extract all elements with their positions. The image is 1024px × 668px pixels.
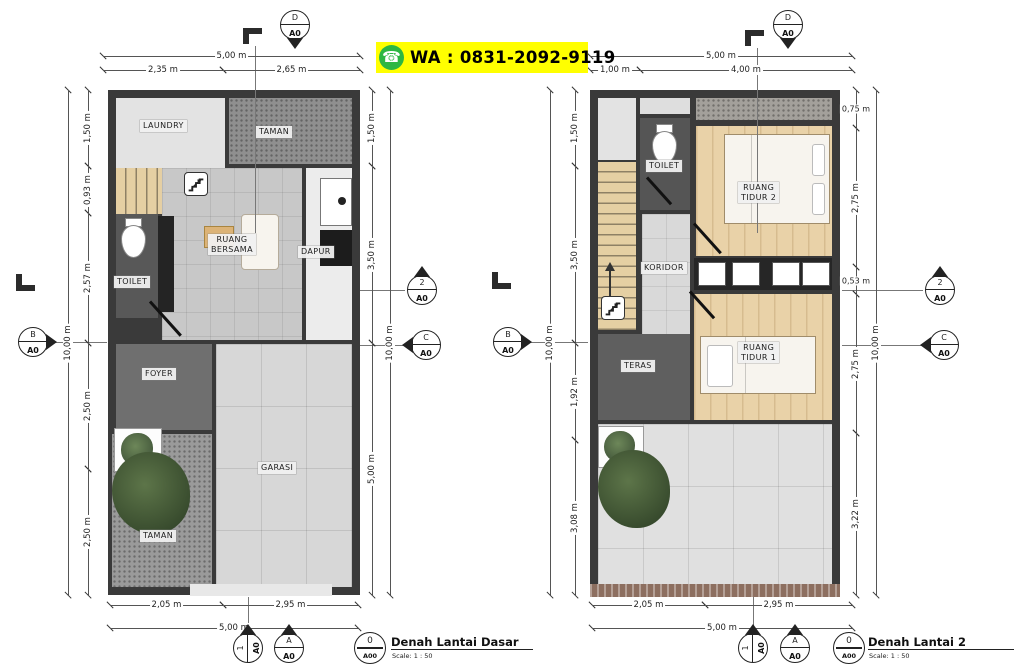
dimension-value: 2,75 m xyxy=(851,181,861,215)
room-label: LAUNDRY xyxy=(140,120,187,132)
marker-arrow xyxy=(281,624,297,635)
dimension-value: 2,50 m xyxy=(83,389,93,423)
marker-arrow xyxy=(46,334,57,350)
whatsapp-icon: ☎ xyxy=(379,45,404,70)
kitchen-appliance xyxy=(320,178,352,226)
dimension: 2,50 m xyxy=(83,343,93,469)
dimension: 1,50 m xyxy=(83,90,93,166)
dimension-value: 0,53 m xyxy=(840,276,872,285)
dimension-value: 3,50 m xyxy=(367,238,377,272)
room-teras xyxy=(598,334,690,420)
dimension: 10,00 m xyxy=(545,90,555,595)
section-marker-b: BA0 xyxy=(16,325,50,359)
dimension-value: 2,35 m xyxy=(146,65,180,75)
dimension: 5,00 m xyxy=(367,343,377,595)
marker-arrow xyxy=(240,624,256,635)
dimension-value: 5,00 m xyxy=(367,452,377,486)
section-marker-d: DA0 xyxy=(771,8,805,42)
section-cut-symbol xyxy=(492,283,511,289)
section-marker-c: CA0 xyxy=(927,328,961,362)
dimension: 2,75 m xyxy=(851,128,861,267)
wardrobe xyxy=(694,258,832,290)
dimension-value: 1,50 m xyxy=(570,111,580,145)
room-void-mid xyxy=(640,98,690,114)
section-marker-2: 2A0 xyxy=(923,273,957,307)
room-label: RUANG TIDUR 2 xyxy=(738,182,779,203)
section-marker-a: AA0 xyxy=(272,631,306,665)
dimension-value: 2,05 m xyxy=(150,600,184,610)
dimension: 2,05 m xyxy=(110,600,223,610)
dimension: 5,00 m xyxy=(592,623,852,633)
stairs-icon xyxy=(601,296,625,320)
dimension: 3,50 m xyxy=(367,166,377,343)
dimension: 0,75 m xyxy=(851,90,861,128)
section-marker-c: CA0 xyxy=(409,328,443,362)
stairs-icon xyxy=(184,172,208,196)
dimension: 0,93 m xyxy=(83,166,93,213)
dimension-value: 2,05 m xyxy=(632,600,666,610)
section-marker-1: 1A0 xyxy=(736,631,770,665)
whatsapp-number: WA : 0831-2092-9119 xyxy=(410,48,615,67)
section-marker-1: 1A0 xyxy=(231,631,265,665)
dimension-value: 10,00 m xyxy=(545,323,555,362)
dimension-value: 3,22 m xyxy=(851,497,861,531)
dimension-value: 0,93 m xyxy=(83,173,93,207)
section-cut-symbol xyxy=(16,285,35,291)
reference-line xyxy=(757,48,758,233)
room-label: GARASI xyxy=(258,462,296,474)
room-label: TOILET xyxy=(646,160,682,172)
double-bed xyxy=(724,134,830,224)
dimension: 1,50 m xyxy=(367,90,377,166)
title-marker: 0A00 xyxy=(833,632,865,664)
room-label: TERAS xyxy=(621,360,655,372)
dimension-value: 2,57 m xyxy=(83,261,93,295)
room-label: DAPUR xyxy=(298,246,334,258)
dimension-value: 1,50 m xyxy=(367,111,377,145)
section-cut-symbol xyxy=(243,28,249,44)
room-label: TAMAN xyxy=(256,126,292,138)
dimension: 10,00 m xyxy=(385,90,395,595)
marker-arrow xyxy=(920,337,931,353)
dimension-value: 3,08 m xyxy=(570,501,580,535)
dimension-value: 5,00 m xyxy=(705,623,739,633)
dimension: 2,65 m xyxy=(223,65,360,75)
dimension: 2,57 m xyxy=(83,213,93,343)
title-rule xyxy=(391,649,533,650)
fixture-rect xyxy=(190,584,332,596)
section-marker-a: AA0 xyxy=(778,631,812,665)
section-marker-d: DA0 xyxy=(278,8,312,42)
dimension-value: 1,50 m xyxy=(83,111,93,145)
dimension: 3,08 m xyxy=(570,440,580,595)
dimension-value: 0,75 m xyxy=(840,105,872,114)
dimension: 2,35 m xyxy=(103,65,223,75)
dimension-value: 2,50 m xyxy=(83,515,93,549)
dimension: 5,00 m xyxy=(103,51,360,61)
marker-arrow xyxy=(521,334,532,350)
dimension-value: 4,00 m xyxy=(729,65,763,75)
room-label: TAMAN xyxy=(140,530,176,542)
marker-arrow xyxy=(745,624,761,635)
dimension-value: 2,65 m xyxy=(275,65,309,75)
dimension-value: 1,92 m xyxy=(570,375,580,409)
marker-arrow xyxy=(932,266,948,277)
dimension-value: 10,00 m xyxy=(385,323,395,362)
toilet-wc xyxy=(652,124,677,164)
room-label: RUANG TIDUR 1 xyxy=(738,342,779,363)
dimension-value: 10,00 m xyxy=(871,323,881,362)
room-laundry xyxy=(116,98,225,168)
dimension-value: 5,00 m xyxy=(215,51,249,61)
dimension: 5,00 m xyxy=(590,51,852,61)
title-marker: 0A00 xyxy=(354,632,386,664)
floor-plan-canvas: ☎ WA : 0831-2092-9119 LAUNDRYTAMANRUANG … xyxy=(0,0,1024,668)
room-label: KORIDOR xyxy=(641,262,687,274)
dimension: 3,22 m xyxy=(851,433,861,595)
plan-title: Denah Lantai Dasar xyxy=(391,635,519,649)
room-foyer xyxy=(116,344,212,430)
dimension-value: 3,50 m xyxy=(570,238,580,272)
dimension: 4,00 m xyxy=(640,65,852,75)
dimension: 10,00 m xyxy=(871,90,881,595)
dimension-value: 2,75 m xyxy=(851,347,861,381)
whatsapp-banner: ☎ WA : 0831-2092-9119 xyxy=(376,42,588,73)
garden-tree xyxy=(598,450,670,528)
room-void-left xyxy=(598,98,636,160)
fixture-rect xyxy=(158,216,174,312)
dimension-value: 2,95 m xyxy=(762,600,796,610)
dimension: 1,50 m xyxy=(570,90,580,166)
toilet-wc xyxy=(121,218,146,258)
plan-scale: Scale: 1 : 50 xyxy=(869,652,909,660)
marker-arrow xyxy=(402,337,413,353)
room-label: RUANG BERSAMA xyxy=(208,234,256,255)
marker-arrow xyxy=(414,266,430,277)
dimension: 2,75 m xyxy=(851,294,861,433)
dimension-value: 2,95 m xyxy=(274,600,308,610)
room-label: TOILET xyxy=(114,276,150,288)
room-label: FOYER xyxy=(142,368,176,380)
dimension: 2,95 m xyxy=(705,600,852,610)
dimension: 10,00 m xyxy=(63,90,73,595)
marker-arrow xyxy=(780,38,796,49)
room-roof xyxy=(696,98,832,120)
paver-strip xyxy=(590,584,840,597)
dimension: 2,05 m xyxy=(592,600,705,610)
dimension: 3,50 m xyxy=(570,166,580,343)
plan-scale: Scale: 1 : 50 xyxy=(392,652,432,660)
dimension: 1,92 m xyxy=(570,343,580,440)
marker-arrow xyxy=(787,624,803,635)
section-marker-2: 2A0 xyxy=(405,273,439,307)
section-cut-symbol xyxy=(745,30,751,46)
marker-arrow xyxy=(287,38,303,49)
section-marker-b: BA0 xyxy=(491,325,525,359)
dimension-value: 5,00 m xyxy=(704,51,738,61)
dimension: 2,95 m xyxy=(223,600,358,610)
room-koridor xyxy=(642,214,690,348)
reference-line xyxy=(50,342,107,343)
plan-title: Denah Lantai 2 xyxy=(868,635,966,649)
garden-tree xyxy=(112,452,190,534)
dimension-value: 10,00 m xyxy=(63,323,73,362)
title-rule xyxy=(868,649,1014,650)
dimension: 2,50 m xyxy=(83,469,93,595)
